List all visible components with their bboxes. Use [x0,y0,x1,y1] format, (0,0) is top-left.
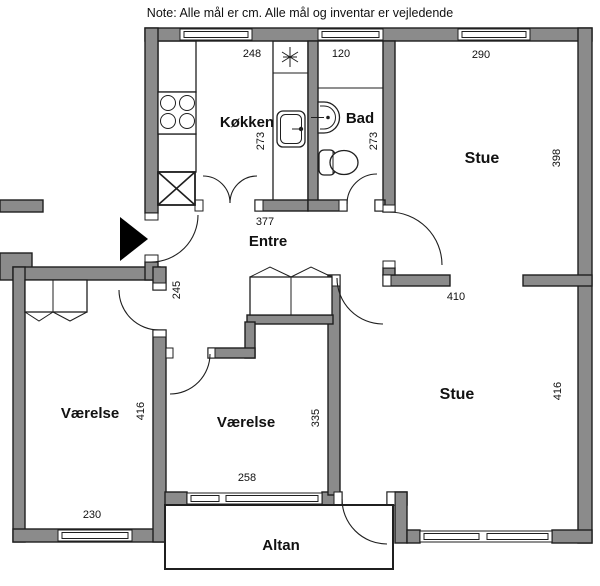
dim-kitchen-width: 248 [232,48,272,60]
room-label-kitchen: Køkken [197,114,297,131]
floorplan-drawing [0,0,600,586]
dim-living-bottom-height: 416 [552,371,564,411]
dim-living-top-height: 398 [551,138,563,178]
plan-note: Note: Alle mål er cm. Alle mål og invent… [0,6,600,20]
toilet-icon [319,150,358,175]
stove-icon [158,92,196,134]
room-label-room-left: Værelse [40,405,140,422]
dim-living-top-width: 290 [461,49,501,61]
dim-room-mid-height: 335 [310,398,322,438]
room-label-bath: Bad [310,110,410,127]
dim-room-left-width: 230 [72,509,112,521]
entrance-arrow-icon [120,217,148,261]
door-arc-icon [119,174,442,544]
dim-living-bottom-width: 410 [436,291,476,303]
room-label-living-bottom: Stue [407,386,507,404]
dim-hall-depth: 245 [171,270,183,310]
dim-room-mid-width: 258 [227,472,267,484]
room-label-living-top: Stue [432,150,532,168]
room-label-room-mid: Værelse [196,414,296,431]
dim-room-left-height: 416 [135,391,147,431]
dim-bath-height: 273 [368,121,380,161]
dim-kitchen-height: 273 [255,121,267,161]
room-label-hall: Entre [218,233,318,250]
shaft-x-icon [158,172,195,205]
dim-bath-width: 120 [321,48,361,60]
dim-hall-width: 377 [245,216,285,228]
floorplan-canvas: Note: Alle mål er cm. Alle mål og invent… [0,0,600,586]
room-label-balcony: Altan [231,537,331,554]
